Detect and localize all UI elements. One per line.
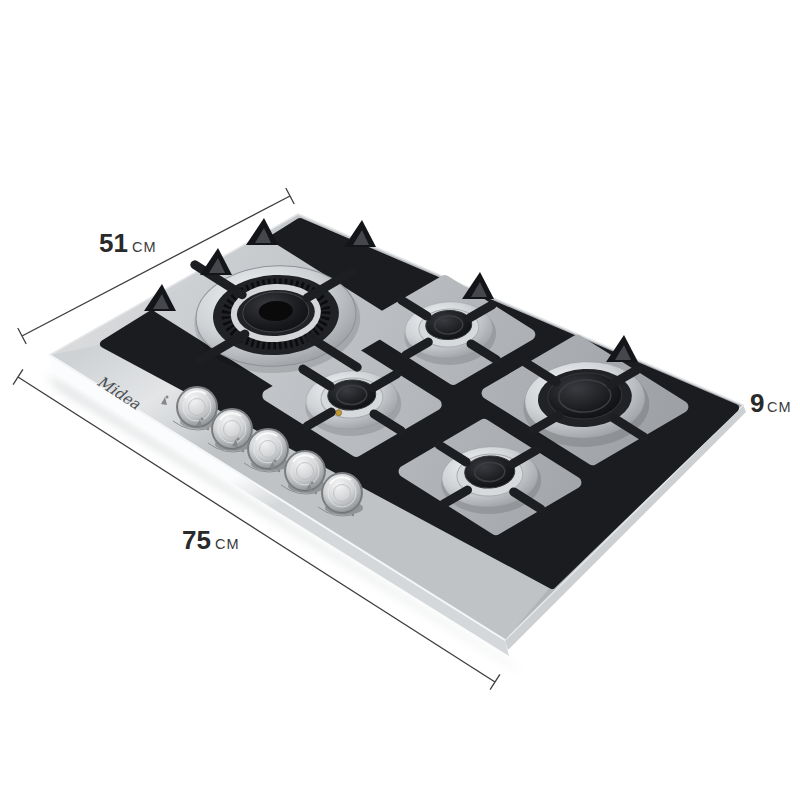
product-image: Midea: [0, 0, 800, 800]
dimension-tick: [13, 369, 23, 384]
prong: [344, 220, 376, 247]
dimension-tick: [286, 188, 294, 204]
dimension-tick: [490, 674, 500, 689]
depth-value: 51: [99, 228, 128, 258]
dimension-tick: [18, 328, 26, 344]
width-unit: CM: [215, 536, 240, 552]
cooktop-render: Midea: [0, 0, 800, 800]
depth-unit: CM: [132, 239, 157, 255]
width-value: 75: [182, 525, 211, 555]
height-unit: CM: [767, 399, 792, 415]
brass-injector: [335, 410, 341, 416]
height-value: 9: [750, 388, 764, 418]
prong: [462, 272, 494, 299]
